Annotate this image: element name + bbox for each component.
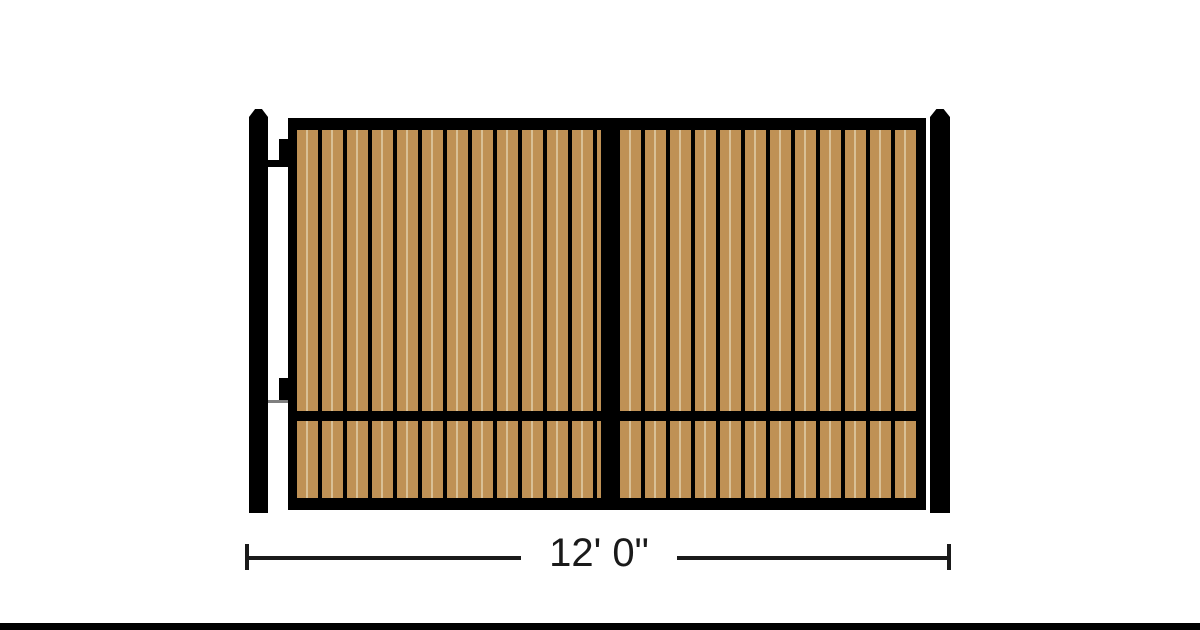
gate-frame — [288, 118, 926, 510]
right-post — [930, 109, 950, 513]
bottom-border-bar — [0, 623, 1200, 630]
gate-diagram: 12' 0" — [0, 0, 1200, 630]
top-hinge-arm — [268, 160, 290, 167]
right-leaf-upper-wood-infill — [620, 130, 917, 411]
dimension-label: 12' 0" — [521, 531, 677, 575]
bottom-hinge-arm — [268, 400, 290, 403]
dimension-line-right-segment — [677, 556, 947, 560]
dimension-line-left-segment — [249, 556, 521, 560]
dimension-tick-right — [947, 544, 951, 570]
left-leaf-lower-wood-infill — [297, 421, 601, 498]
right-leaf-lower-wood-infill — [620, 421, 917, 498]
left-leaf-upper-wood-infill — [297, 130, 601, 411]
left-post — [249, 109, 268, 513]
